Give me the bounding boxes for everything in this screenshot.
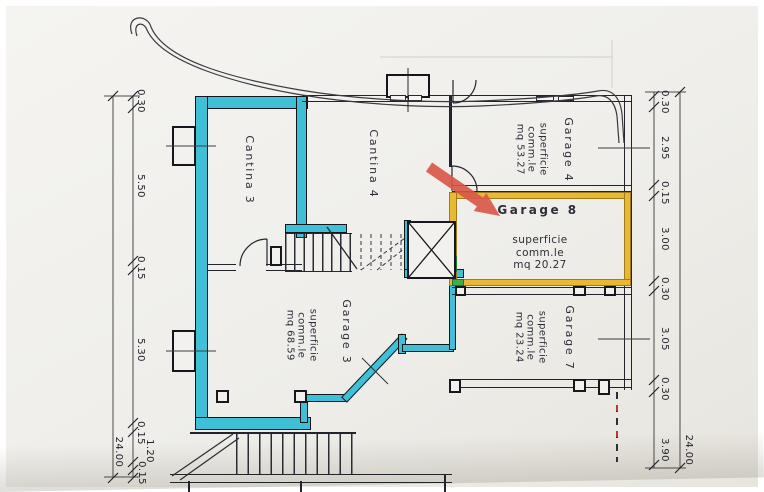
room-area-garage3: superficie comm.le mq 68.59 [284, 293, 319, 377]
room-label-cantina3: Cantina 3 [242, 115, 256, 225]
rail-stub-3 [444, 474, 446, 492]
rail-stub-2 [300, 481, 302, 492]
room-area-garage4: superficie comm.le mq 53.27 [514, 107, 549, 191]
room-label-cantina4: Cantina 4 [366, 109, 380, 219]
wall-corridor-garage4 [449, 95, 452, 167]
highlight-garage8-right [624, 192, 631, 286]
dim-left-0: 0.30 [134, 84, 146, 118]
dim-right-6: 0.30 [658, 372, 670, 406]
rail-stub-1 [188, 481, 190, 492]
stair-bottom-treads [236, 434, 356, 474]
wall-top-thin [302, 95, 632, 102]
dim-right-total: 24.00 [682, 433, 694, 467]
post-garage3-a [216, 390, 229, 403]
dim-left-2: 0.15 [134, 251, 146, 285]
window-garage3 [172, 330, 196, 372]
post-g7-right [598, 379, 610, 395]
window-slot-top-2 [408, 95, 422, 101]
wall-bottom-garage3 [195, 417, 311, 430]
dim-left-total: 24.00 [112, 435, 124, 469]
wall-top-cantina3 [195, 96, 308, 109]
scan-paper [6, 6, 758, 487]
room-label-garage3: Garage 3 [339, 287, 353, 377]
wall-step-horizontal [300, 394, 348, 402]
room-area-garage8: superficie comm.le mq 20.27 [490, 234, 590, 272]
dim-left-1: 5.50 [134, 169, 146, 203]
dim-right-3: 3.00 [658, 222, 670, 256]
room-area-garage7: superficie comm.le mq 23.24 [513, 295, 548, 379]
post-garage3-b [294, 390, 307, 403]
stair-bottom-rail [170, 474, 452, 483]
floor-plan-scan: Cantina 3 Cantina 4 Garage 4 superficie … [0, 0, 764, 492]
stair-jamb [270, 246, 282, 266]
dim-left-6: 0.15 [135, 456, 147, 490]
dim-right-2: 0.15 [658, 176, 670, 210]
wall-corridor-a [208, 264, 236, 271]
stair-main-treads [285, 233, 352, 272]
wall-mid-horizontal [402, 344, 454, 352]
room-label-garage4: Garage 4 [561, 105, 575, 195]
wall-left-exterior [195, 96, 208, 430]
room-label-garage8: Garage 8 [488, 203, 588, 217]
dim-right-4: 0.30 [658, 272, 670, 306]
dim-right-7: 3.90 [658, 433, 670, 467]
highlight-garage8-top [452, 192, 631, 199]
wall-cantina3-cantina4 [296, 96, 307, 238]
dim-left-3: 5.30 [134, 333, 146, 367]
post-g8-right [604, 286, 616, 296]
window-cantina3 [172, 126, 196, 166]
room-label-garage7: Garage 7 [562, 293, 576, 383]
dim-right-1: 2.95 [658, 131, 670, 165]
dim-right-5: 3.05 [658, 322, 670, 356]
highlight-garage8-bottom [452, 279, 631, 286]
elevator-shaft [407, 221, 456, 279]
window-slot-top-1 [390, 95, 406, 101]
window-slot-garage4-1 [536, 96, 554, 101]
dim-right-0: 0.30 [658, 85, 670, 119]
window-slot-garage4-2 [558, 96, 574, 101]
post-g7-left [449, 379, 461, 393]
highlight-green-corner [452, 279, 464, 286]
post-g8-left [455, 286, 466, 296]
wall-stair-top [285, 224, 347, 233]
